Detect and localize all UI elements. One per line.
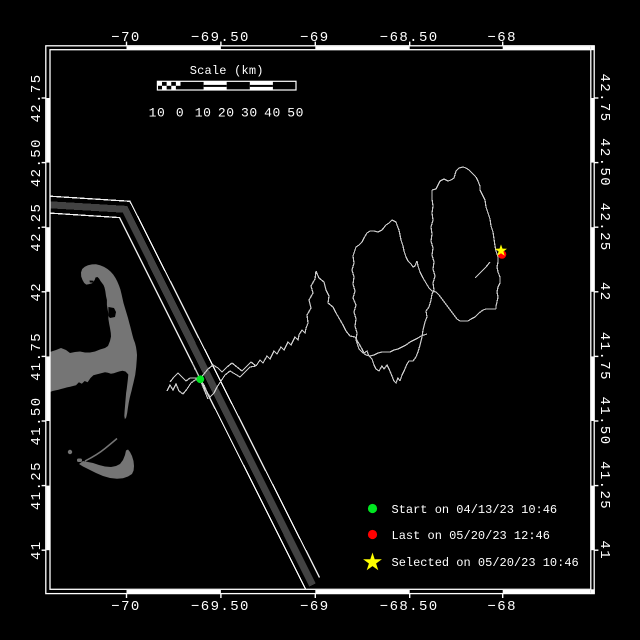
svg-text:42.75: 42.75: [596, 73, 612, 122]
svg-text:50: 50: [287, 106, 304, 121]
svg-text:41: 41: [29, 540, 45, 560]
svg-text:Selected on 05/20/23 10:46: Selected on 05/20/23 10:46: [392, 556, 579, 570]
svg-text:42: 42: [29, 282, 45, 302]
svg-text:Start on 04/13/23 10:46: Start on 04/13/23 10:46: [392, 503, 558, 517]
svg-text:−68: −68: [487, 599, 516, 615]
svg-text:42.50: 42.50: [29, 138, 45, 187]
svg-text:−69: −69: [300, 30, 329, 46]
svg-text:42.25: 42.25: [29, 203, 45, 252]
svg-text:41.50: 41.50: [596, 396, 612, 445]
svg-text:41: 41: [596, 540, 612, 560]
svg-text:41.25: 41.25: [596, 461, 612, 510]
svg-text:42: 42: [596, 282, 612, 302]
svg-text:−68.50: −68.50: [380, 599, 439, 615]
svg-text:41.75: 41.75: [596, 332, 612, 381]
svg-text:Scale (km): Scale (km): [190, 64, 264, 78]
svg-text:42.25: 42.25: [596, 203, 612, 252]
svg-text:20: 20: [218, 106, 235, 121]
svg-text:10: 10: [149, 106, 166, 121]
svg-text:−70: −70: [111, 599, 140, 615]
svg-text:41.50: 41.50: [29, 396, 45, 445]
svg-text:0: 0: [176, 106, 184, 121]
svg-text:−69: −69: [300, 599, 329, 615]
svg-text:30: 30: [241, 106, 258, 121]
svg-text:−68: −68: [487, 30, 516, 46]
svg-text:41.75: 41.75: [29, 332, 45, 381]
svg-text:Last on 05/20/23 12:46: Last on 05/20/23 12:46: [392, 529, 550, 543]
svg-text:−69.50: −69.50: [191, 30, 250, 46]
svg-text:−69.50: −69.50: [191, 599, 250, 615]
svg-text:41.25: 41.25: [29, 461, 45, 510]
svg-text:−70: −70: [111, 30, 140, 46]
svg-text:−68.50: −68.50: [380, 30, 439, 46]
svg-text:40: 40: [264, 106, 281, 121]
svg-text:10: 10: [195, 106, 212, 121]
svg-text:42.75: 42.75: [29, 73, 45, 122]
svg-text:42.50: 42.50: [596, 138, 612, 187]
